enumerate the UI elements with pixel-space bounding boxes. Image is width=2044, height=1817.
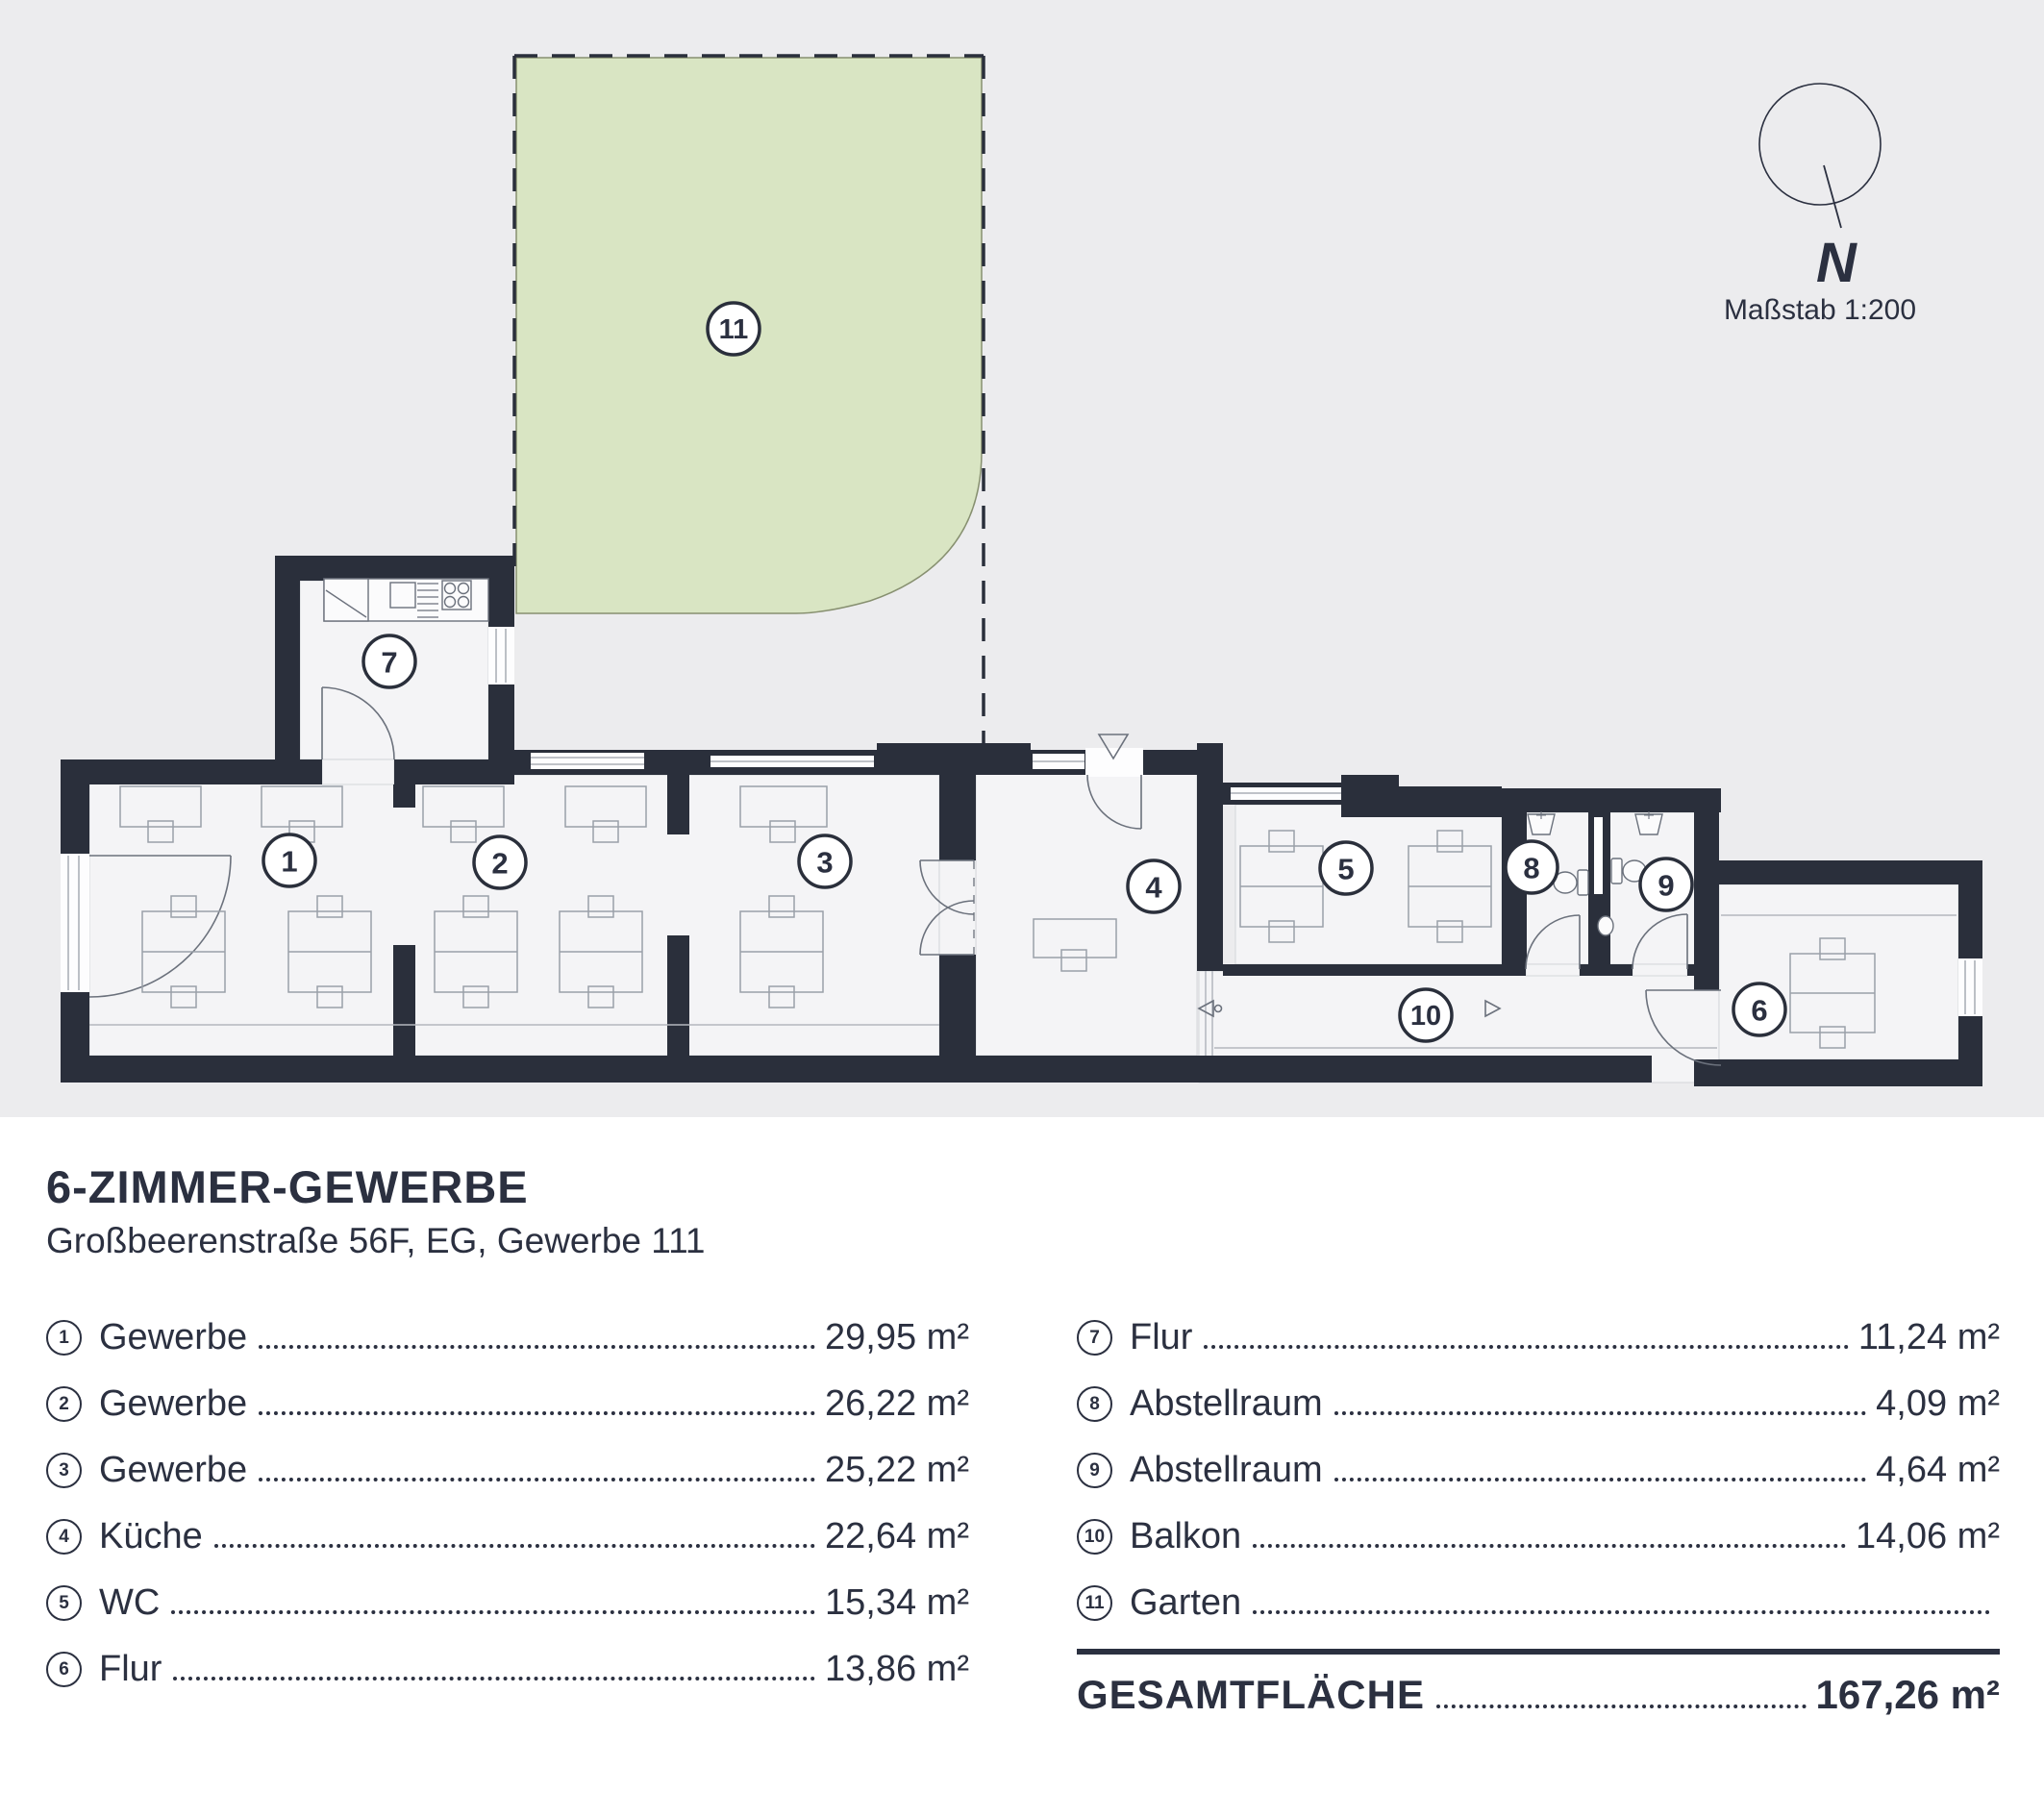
dot-leader xyxy=(259,1478,815,1481)
svg-text:3: 3 xyxy=(816,846,833,880)
plan-header: 6-ZIMMER-GEWERBE Großbeerenstraße 56F, E… xyxy=(46,1161,2000,1261)
svg-text:8: 8 xyxy=(1523,852,1539,885)
svg-text:5: 5 xyxy=(1337,853,1354,886)
legend-column-right: 7 Flur 11,24 m² 8 Abstellraum 4,09 m² 9 … xyxy=(1077,1317,2000,1718)
room-number-badge: 8 xyxy=(1077,1386,1112,1422)
legend-row: 8 Abstellraum 4,09 m² xyxy=(1077,1383,2000,1425)
room-area: 22,64 m² xyxy=(825,1516,969,1557)
toilet-tank-room8 xyxy=(1578,870,1588,895)
svg-text:2: 2 xyxy=(491,847,508,881)
svg-text:10: 10 xyxy=(1410,1001,1441,1032)
kitchen-fixtures xyxy=(324,579,488,621)
room-label: Flur xyxy=(1130,1317,1192,1358)
dot-leader xyxy=(1253,1610,1990,1614)
total-area-row: GESAMTFLÄCHE 167,26 m² xyxy=(1077,1649,2000,1718)
floorplan-page: 1 2 3 4 5 6 7 8 9 10 11 N Maßstab 1:200 … xyxy=(0,0,2044,1817)
room-number-badge: 11 xyxy=(1077,1585,1112,1621)
page-subtitle: Großbeerenstraße 56F, EG, Gewerbe 111 xyxy=(46,1221,2000,1261)
compass-north-letter: N xyxy=(1816,232,1857,294)
room-label: Abstellraum xyxy=(1130,1383,1323,1425)
legend-row: 2 Gewerbe 26,22 m² xyxy=(46,1383,969,1425)
dot-leader xyxy=(1204,1345,1848,1349)
legend-column-left: 1 Gewerbe 29,95 m² 2 Gewerbe 26,22 m² 3 … xyxy=(46,1317,969,1718)
room-number-badge: 5 xyxy=(46,1585,82,1621)
room-badge-7: 7 xyxy=(363,635,415,687)
room-badge-6: 6 xyxy=(1733,983,1785,1035)
room-number-badge: 1 xyxy=(46,1320,82,1356)
floor-plan: 1 2 3 4 5 6 7 8 9 10 11 N Maßstab 1:200 xyxy=(0,0,2044,1117)
room-label: Gewerbe xyxy=(99,1450,247,1491)
room-area: 15,34 m² xyxy=(825,1582,969,1624)
svg-text:9: 9 xyxy=(1658,869,1674,903)
room-badge-5: 5 xyxy=(1320,842,1372,894)
room-area: 25,22 m² xyxy=(825,1450,969,1491)
room-badge-11: 11 xyxy=(708,303,760,355)
room-badge-9: 9 xyxy=(1640,859,1692,910)
room-label: Gewerbe xyxy=(99,1317,247,1358)
room-badge-10: 10 xyxy=(1400,989,1452,1041)
scale-label: Maßstab 1:200 xyxy=(1724,294,1916,326)
legend-row: 11 Garten xyxy=(1077,1582,2000,1624)
svg-text:4: 4 xyxy=(1145,871,1162,905)
dot-leader xyxy=(1334,1411,1867,1415)
dot-leader xyxy=(173,1677,815,1680)
room-number-badge: 3 xyxy=(46,1453,82,1488)
total-area-label: GESAMTFLÄCHE xyxy=(1077,1672,1425,1718)
room-number-badge: 9 xyxy=(1077,1453,1112,1488)
legend-row: 3 Gewerbe 25,22 m² xyxy=(46,1450,969,1491)
room-label: WC xyxy=(99,1582,160,1624)
dot-leader xyxy=(214,1544,815,1548)
legend-row: 10 Balkon 14,06 m² xyxy=(1077,1516,2000,1557)
room-badge-3: 3 xyxy=(799,835,851,887)
room-area: 29,95 m² xyxy=(825,1317,969,1358)
room-number-badge: 10 xyxy=(1077,1519,1112,1555)
room-label: Flur xyxy=(99,1649,162,1690)
room-badge-8: 8 xyxy=(1506,841,1558,893)
room-label: Balkon xyxy=(1130,1516,1241,1557)
svg-text:11: 11 xyxy=(719,314,749,345)
room-area: 11,24 m² xyxy=(1858,1317,2000,1358)
room-area: 14,06 m² xyxy=(1856,1516,2000,1557)
legend-row: 4 Küche 22,64 m² xyxy=(46,1516,969,1557)
dot-leader xyxy=(171,1610,815,1614)
plan-panel: 1 2 3 4 5 6 7 8 9 10 11 N Maßstab 1:200 xyxy=(0,0,2044,1117)
room-label: Küche xyxy=(99,1516,203,1557)
svg-text:7: 7 xyxy=(381,646,397,680)
room-label: Abstellraum xyxy=(1130,1450,1323,1491)
room-number-badge: 6 xyxy=(46,1652,82,1687)
svg-text:6: 6 xyxy=(1751,994,1767,1028)
room-badge-2: 2 xyxy=(474,836,526,888)
room-area: 26,22 m² xyxy=(825,1383,969,1425)
legend-row: 6 Flur 13,86 m² xyxy=(46,1649,969,1690)
dot-leader xyxy=(259,1345,815,1349)
room-label: Garten xyxy=(1130,1582,1241,1624)
toilet-tank-room9 xyxy=(1611,859,1622,884)
svg-text:1: 1 xyxy=(281,845,297,879)
room-area: 4,64 m² xyxy=(1876,1450,2000,1491)
total-area-value: 167,26 m² xyxy=(1816,1672,2000,1718)
legend-row: 9 Abstellraum 4,64 m² xyxy=(1077,1450,2000,1491)
legend-row: 1 Gewerbe 29,95 m² xyxy=(46,1317,969,1358)
page-title: 6-ZIMMER-GEWERBE xyxy=(46,1161,2000,1213)
room-number-badge: 4 xyxy=(46,1519,82,1555)
dot-leader xyxy=(1334,1478,1867,1481)
dot-leader xyxy=(1436,1705,1807,1708)
small-basin-room9 xyxy=(1598,916,1613,935)
kitchen-sink xyxy=(390,583,415,608)
room-area: 13,86 m² xyxy=(825,1649,969,1690)
room-number-badge: 2 xyxy=(46,1386,82,1422)
dot-leader xyxy=(259,1411,815,1415)
legend-section: 6-ZIMMER-GEWERBE Großbeerenstraße 56F, E… xyxy=(0,1117,2044,1817)
dot-leader xyxy=(1253,1544,1846,1548)
legend-row: 5 WC 15,34 m² xyxy=(46,1582,969,1624)
room-badge-1: 1 xyxy=(263,834,315,886)
room-number-badge: 7 xyxy=(1077,1320,1112,1356)
room-label: Gewerbe xyxy=(99,1383,247,1425)
legend-row: 7 Flur 11,24 m² xyxy=(1077,1317,2000,1358)
room-badge-4: 4 xyxy=(1128,860,1180,912)
room-area: 4,09 m² xyxy=(1876,1383,2000,1425)
